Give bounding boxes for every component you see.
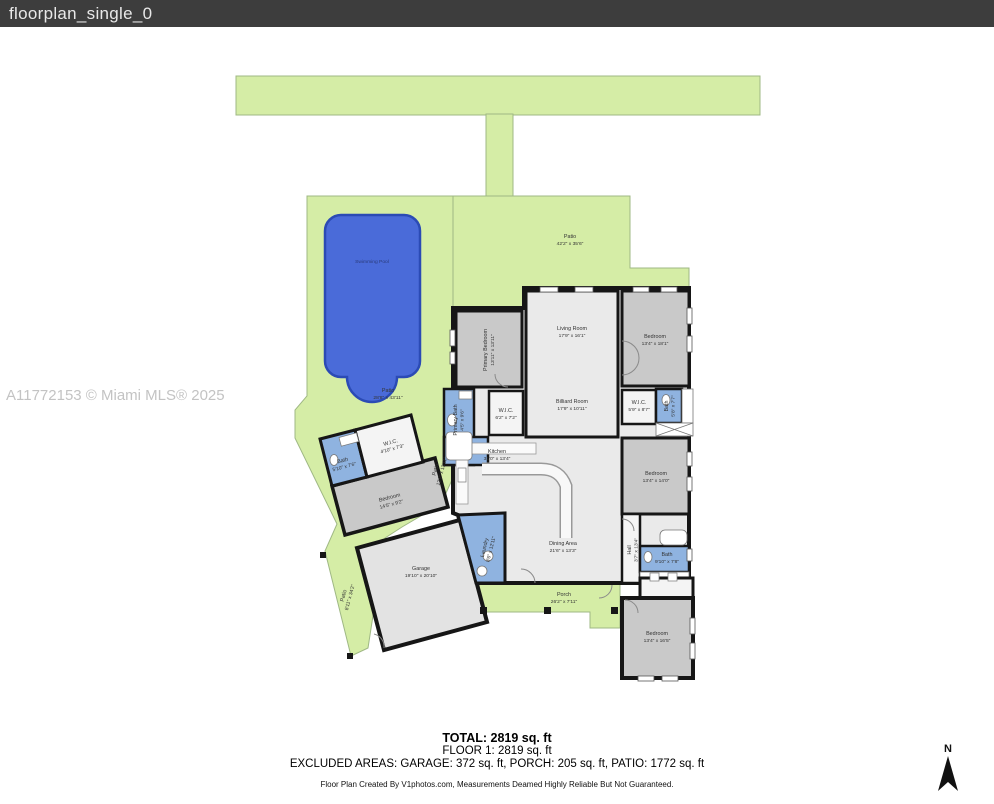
porch-post <box>611 607 618 614</box>
svg-text:Bedroom: Bedroom <box>645 471 667 477</box>
sink <box>668 573 677 581</box>
window <box>687 336 692 352</box>
svg-text:W.I.C.: W.I.C. <box>499 408 514 414</box>
lawn-top-strip <box>236 76 760 115</box>
bath-tr-fixtures <box>682 389 693 423</box>
title-bar: floorplan_single_0 <box>0 0 994 27</box>
window <box>687 452 692 466</box>
svg-text:Patio: Patio <box>382 388 394 394</box>
dryer <box>477 566 487 576</box>
window <box>687 549 692 561</box>
room-label-pool: Swimming Pool <box>355 259 389 265</box>
svg-text:Billiard Room: Billiard Room <box>556 399 589 405</box>
svg-text:Bedroom: Bedroom <box>644 334 666 340</box>
svg-text:Hall: Hall <box>627 545 633 554</box>
window <box>633 287 649 292</box>
svg-text:9'10" x 7'8": 9'10" x 7'8" <box>655 559 679 565</box>
watermark: A11772153 © Miami MLS® 2025 <box>6 387 225 404</box>
bathtub <box>446 432 472 460</box>
svg-text:4'5" x 9'6": 4'5" x 9'6" <box>460 409 466 431</box>
porch-post <box>544 607 551 614</box>
svg-text:17'9" x 16'1": 17'9" x 16'1" <box>559 333 586 339</box>
svg-text:Patio: Patio <box>564 234 576 240</box>
svg-text:21'6" x 13'3": 21'6" x 13'3" <box>550 548 577 554</box>
room-primary-bedroom <box>456 311 522 387</box>
compass: N <box>934 744 962 798</box>
svg-text:5'8" x 7'7": 5'8" x 7'7" <box>671 395 677 417</box>
lawn-corridor <box>486 114 513 208</box>
svg-text:W.I.C.: W.I.C. <box>632 400 647 406</box>
svg-text:3'7" x 13'4": 3'7" x 13'4" <box>634 538 640 562</box>
summary-total: TOTAL: 2819 sq. ft <box>0 732 994 744</box>
window <box>687 477 692 491</box>
svg-text:13'4" x 18'1": 13'4" x 18'1" <box>642 341 669 347</box>
svg-text:31'0" x 13'4": 31'0" x 13'4" <box>484 456 511 462</box>
window <box>638 676 654 681</box>
strip-above-bedroom-br <box>640 578 693 598</box>
window <box>687 308 692 324</box>
summary-credit: Floor Plan Created By V1photos.com, Meas… <box>0 780 994 789</box>
porch-post <box>480 607 487 614</box>
room-wic-right <box>622 390 656 424</box>
window <box>662 676 678 681</box>
window <box>690 643 695 659</box>
summary-floor1: FLOOR 1: 2819 sq. ft <box>0 746 994 757</box>
post <box>320 552 326 558</box>
svg-text:28'8" x 43'11": 28'8" x 43'11" <box>373 395 402 401</box>
svg-text:Bedroom: Bedroom <box>646 631 668 637</box>
svg-text:19'10" x 20'10": 19'10" x 20'10" <box>405 573 438 579</box>
compass-label: N <box>934 744 962 755</box>
svg-text:Garage: Garage <box>412 566 430 572</box>
svg-text:Primary Bath: Primary Bath <box>453 404 459 435</box>
svg-text:Primary Bedroom: Primary Bedroom <box>483 329 489 371</box>
svg-text:Living Room: Living Room <box>557 326 587 332</box>
svg-text:5'9" x 8'7": 5'9" x 8'7" <box>628 407 650 413</box>
svg-text:13'11" x 13'11": 13'11" x 13'11" <box>490 334 496 366</box>
summary-block: TOTAL: 2819 sq. ft FLOOR 1: 2819 sq. ft … <box>0 732 994 789</box>
svg-text:26'2" x 7'11": 26'2" x 7'11" <box>551 599 578 605</box>
svg-text:13'4" x 14'0": 13'4" x 14'0" <box>643 478 670 484</box>
kitchen-sink <box>458 468 466 482</box>
svg-text:Bath: Bath <box>664 400 670 411</box>
svg-text:Bath: Bath <box>661 552 672 558</box>
window <box>575 287 593 292</box>
room-bedroom-bottom-right <box>622 598 693 678</box>
window <box>661 287 677 292</box>
window <box>450 352 455 364</box>
svg-text:Porch: Porch <box>557 592 571 598</box>
bathtub <box>660 530 687 545</box>
swimming-pool <box>325 215 420 402</box>
svg-text:Dining Area: Dining Area <box>549 541 577 547</box>
svg-text:6'2" x 7'2": 6'2" x 7'2" <box>495 415 517 421</box>
title-text: floorplan_single_0 <box>0 4 152 24</box>
window <box>690 618 695 634</box>
svg-text:Kitchen: Kitchen <box>488 449 506 455</box>
svg-text:42'2" x 35'6": 42'2" x 35'6" <box>557 241 584 247</box>
window <box>450 330 455 346</box>
summary-excluded: EXCLUDED AREAS: GARAGE: 372 sq. ft, PORC… <box>0 759 994 770</box>
svg-text:13'4" x 16'5": 13'4" x 16'5" <box>644 638 671 644</box>
toilet <box>644 552 652 563</box>
room-living-billiard <box>526 291 618 437</box>
sink <box>459 391 472 399</box>
north-arrow-icon <box>936 755 960 793</box>
sink <box>650 573 659 581</box>
window <box>540 287 558 292</box>
screenshot-root: floorplan_single_0 A11772153 © Miami MLS… <box>0 0 994 804</box>
post <box>347 653 353 659</box>
svg-text:17'9" x 10'11": 17'9" x 10'11" <box>557 406 586 412</box>
